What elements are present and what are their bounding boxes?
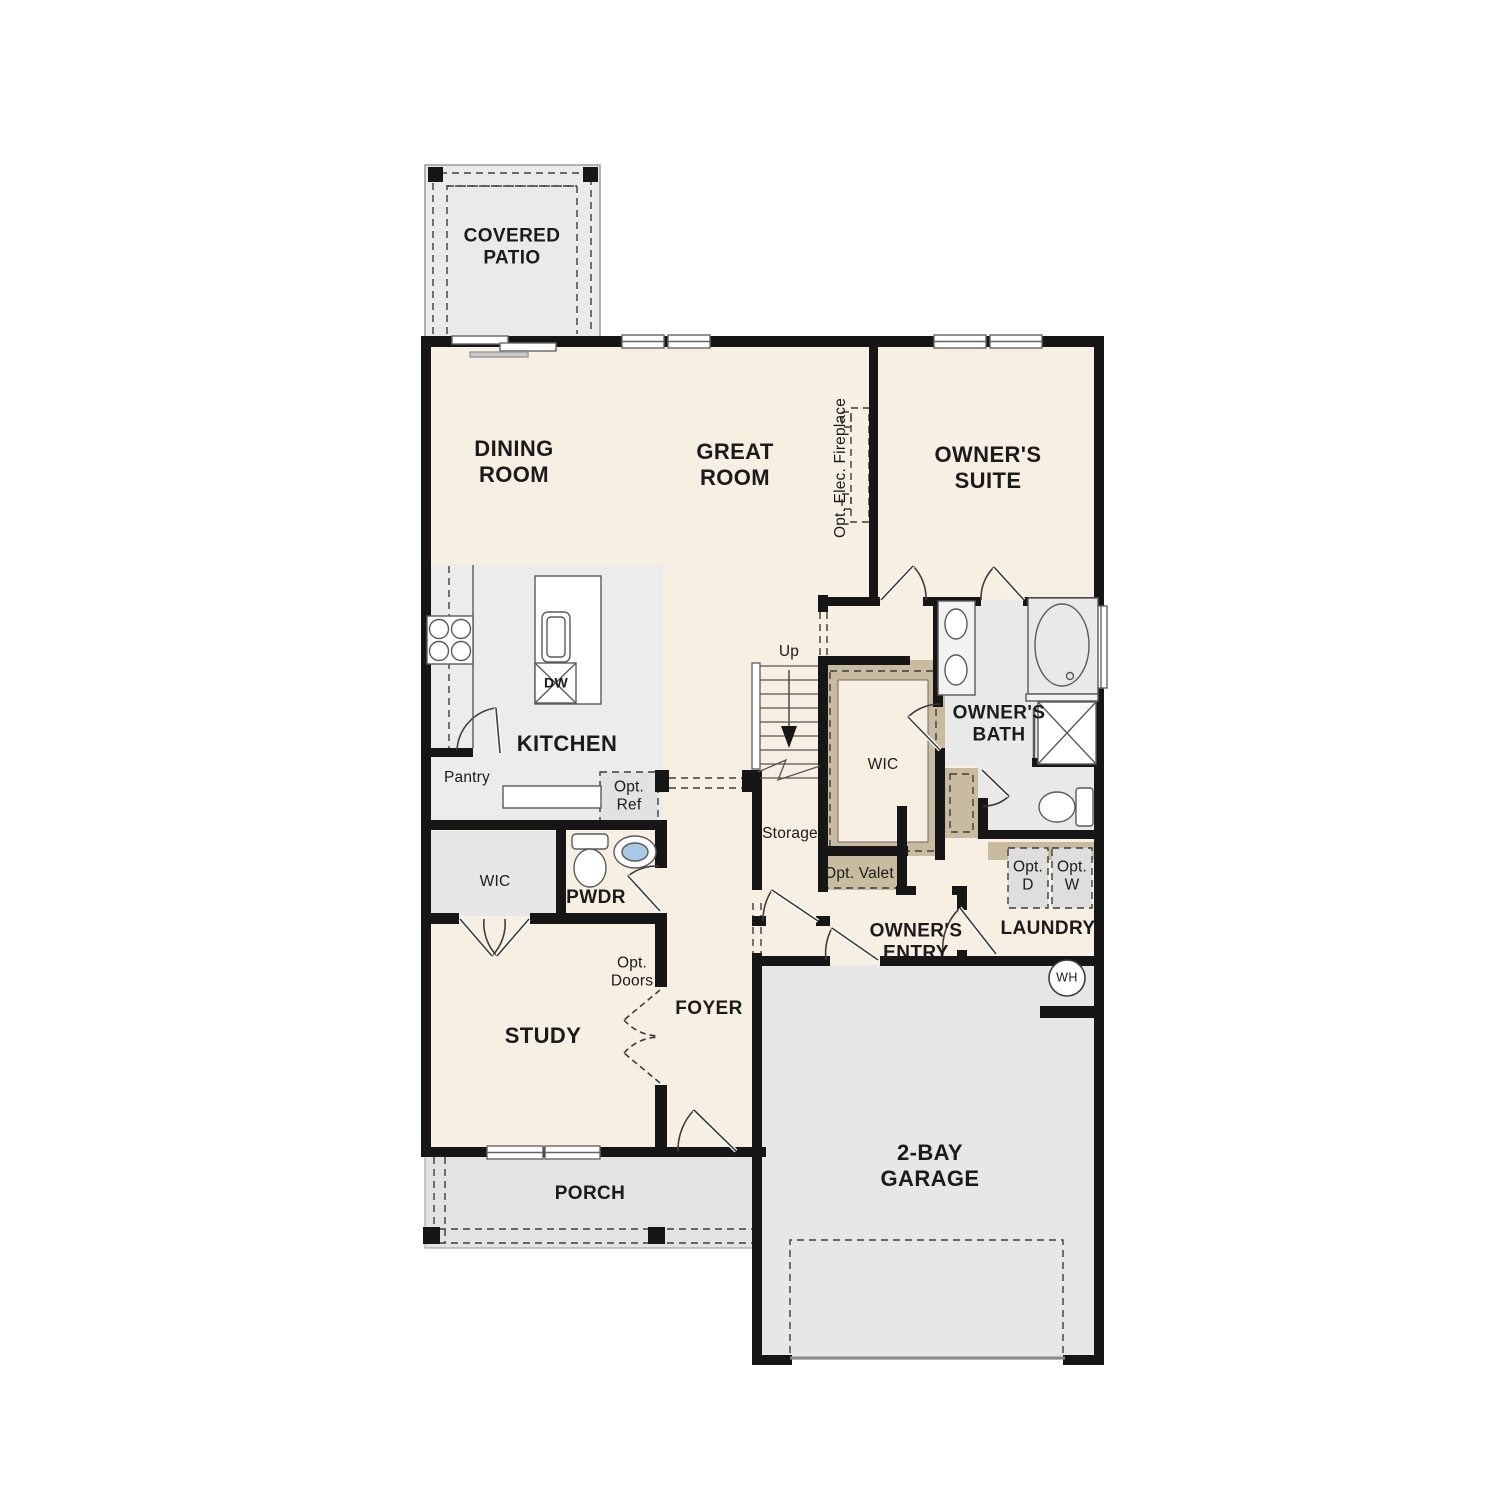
water-heater [1049, 960, 1085, 996]
floorplan-canvas: COVERED PATIO DINING ROOM GREAT ROOM Opt… [0, 0, 1500, 1500]
floorplan-drawing [0, 0, 1500, 1500]
